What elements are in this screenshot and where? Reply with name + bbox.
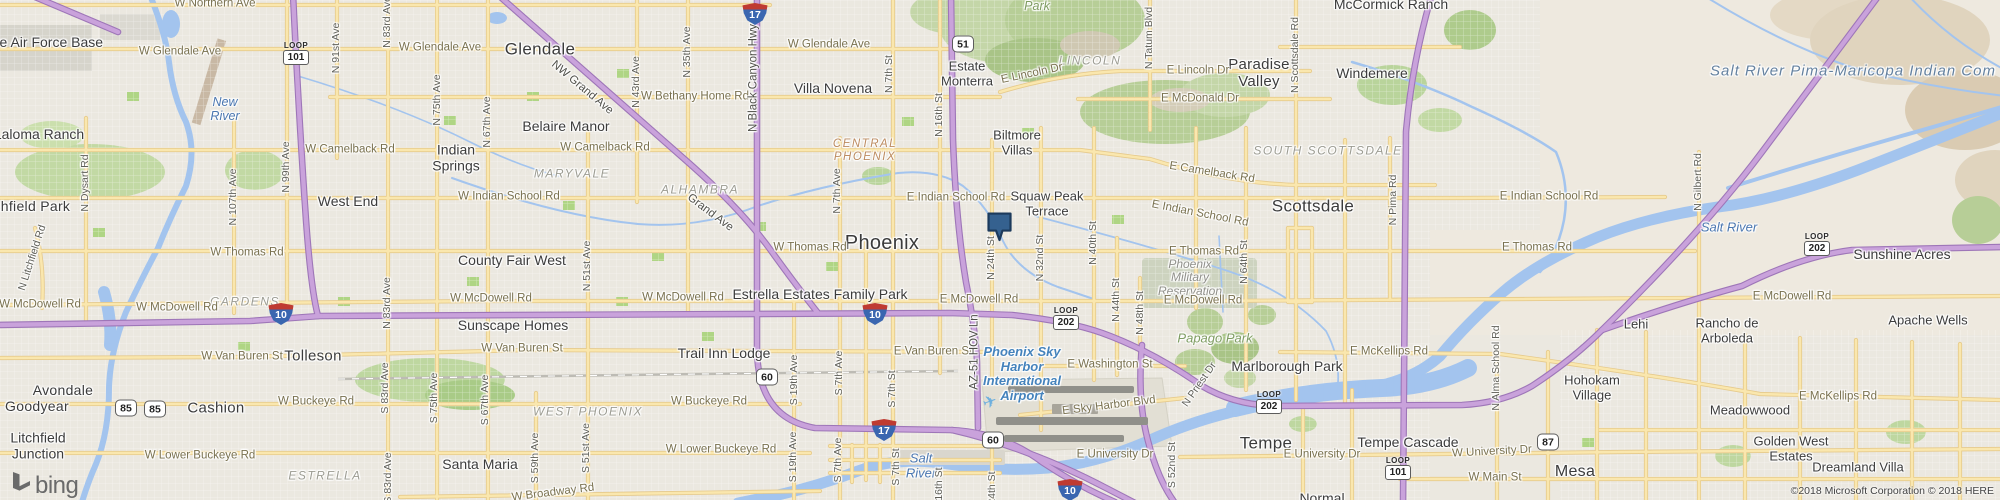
bing-logo-text: bing: [35, 476, 78, 496]
map-attribution: ©2018 Microsoft Corporation © 2018 HERE: [1791, 485, 1994, 497]
bing-logo[interactable]: bing: [12, 472, 78, 496]
bing-logo-icon: [12, 472, 31, 496]
location-marker[interactable]: [987, 212, 1014, 249]
map-canvas[interactable]: GlendalePhoenixScottsdaleTempeMesaTolles…: [0, 0, 2000, 500]
map-base-layers: [0, 0, 2000, 500]
